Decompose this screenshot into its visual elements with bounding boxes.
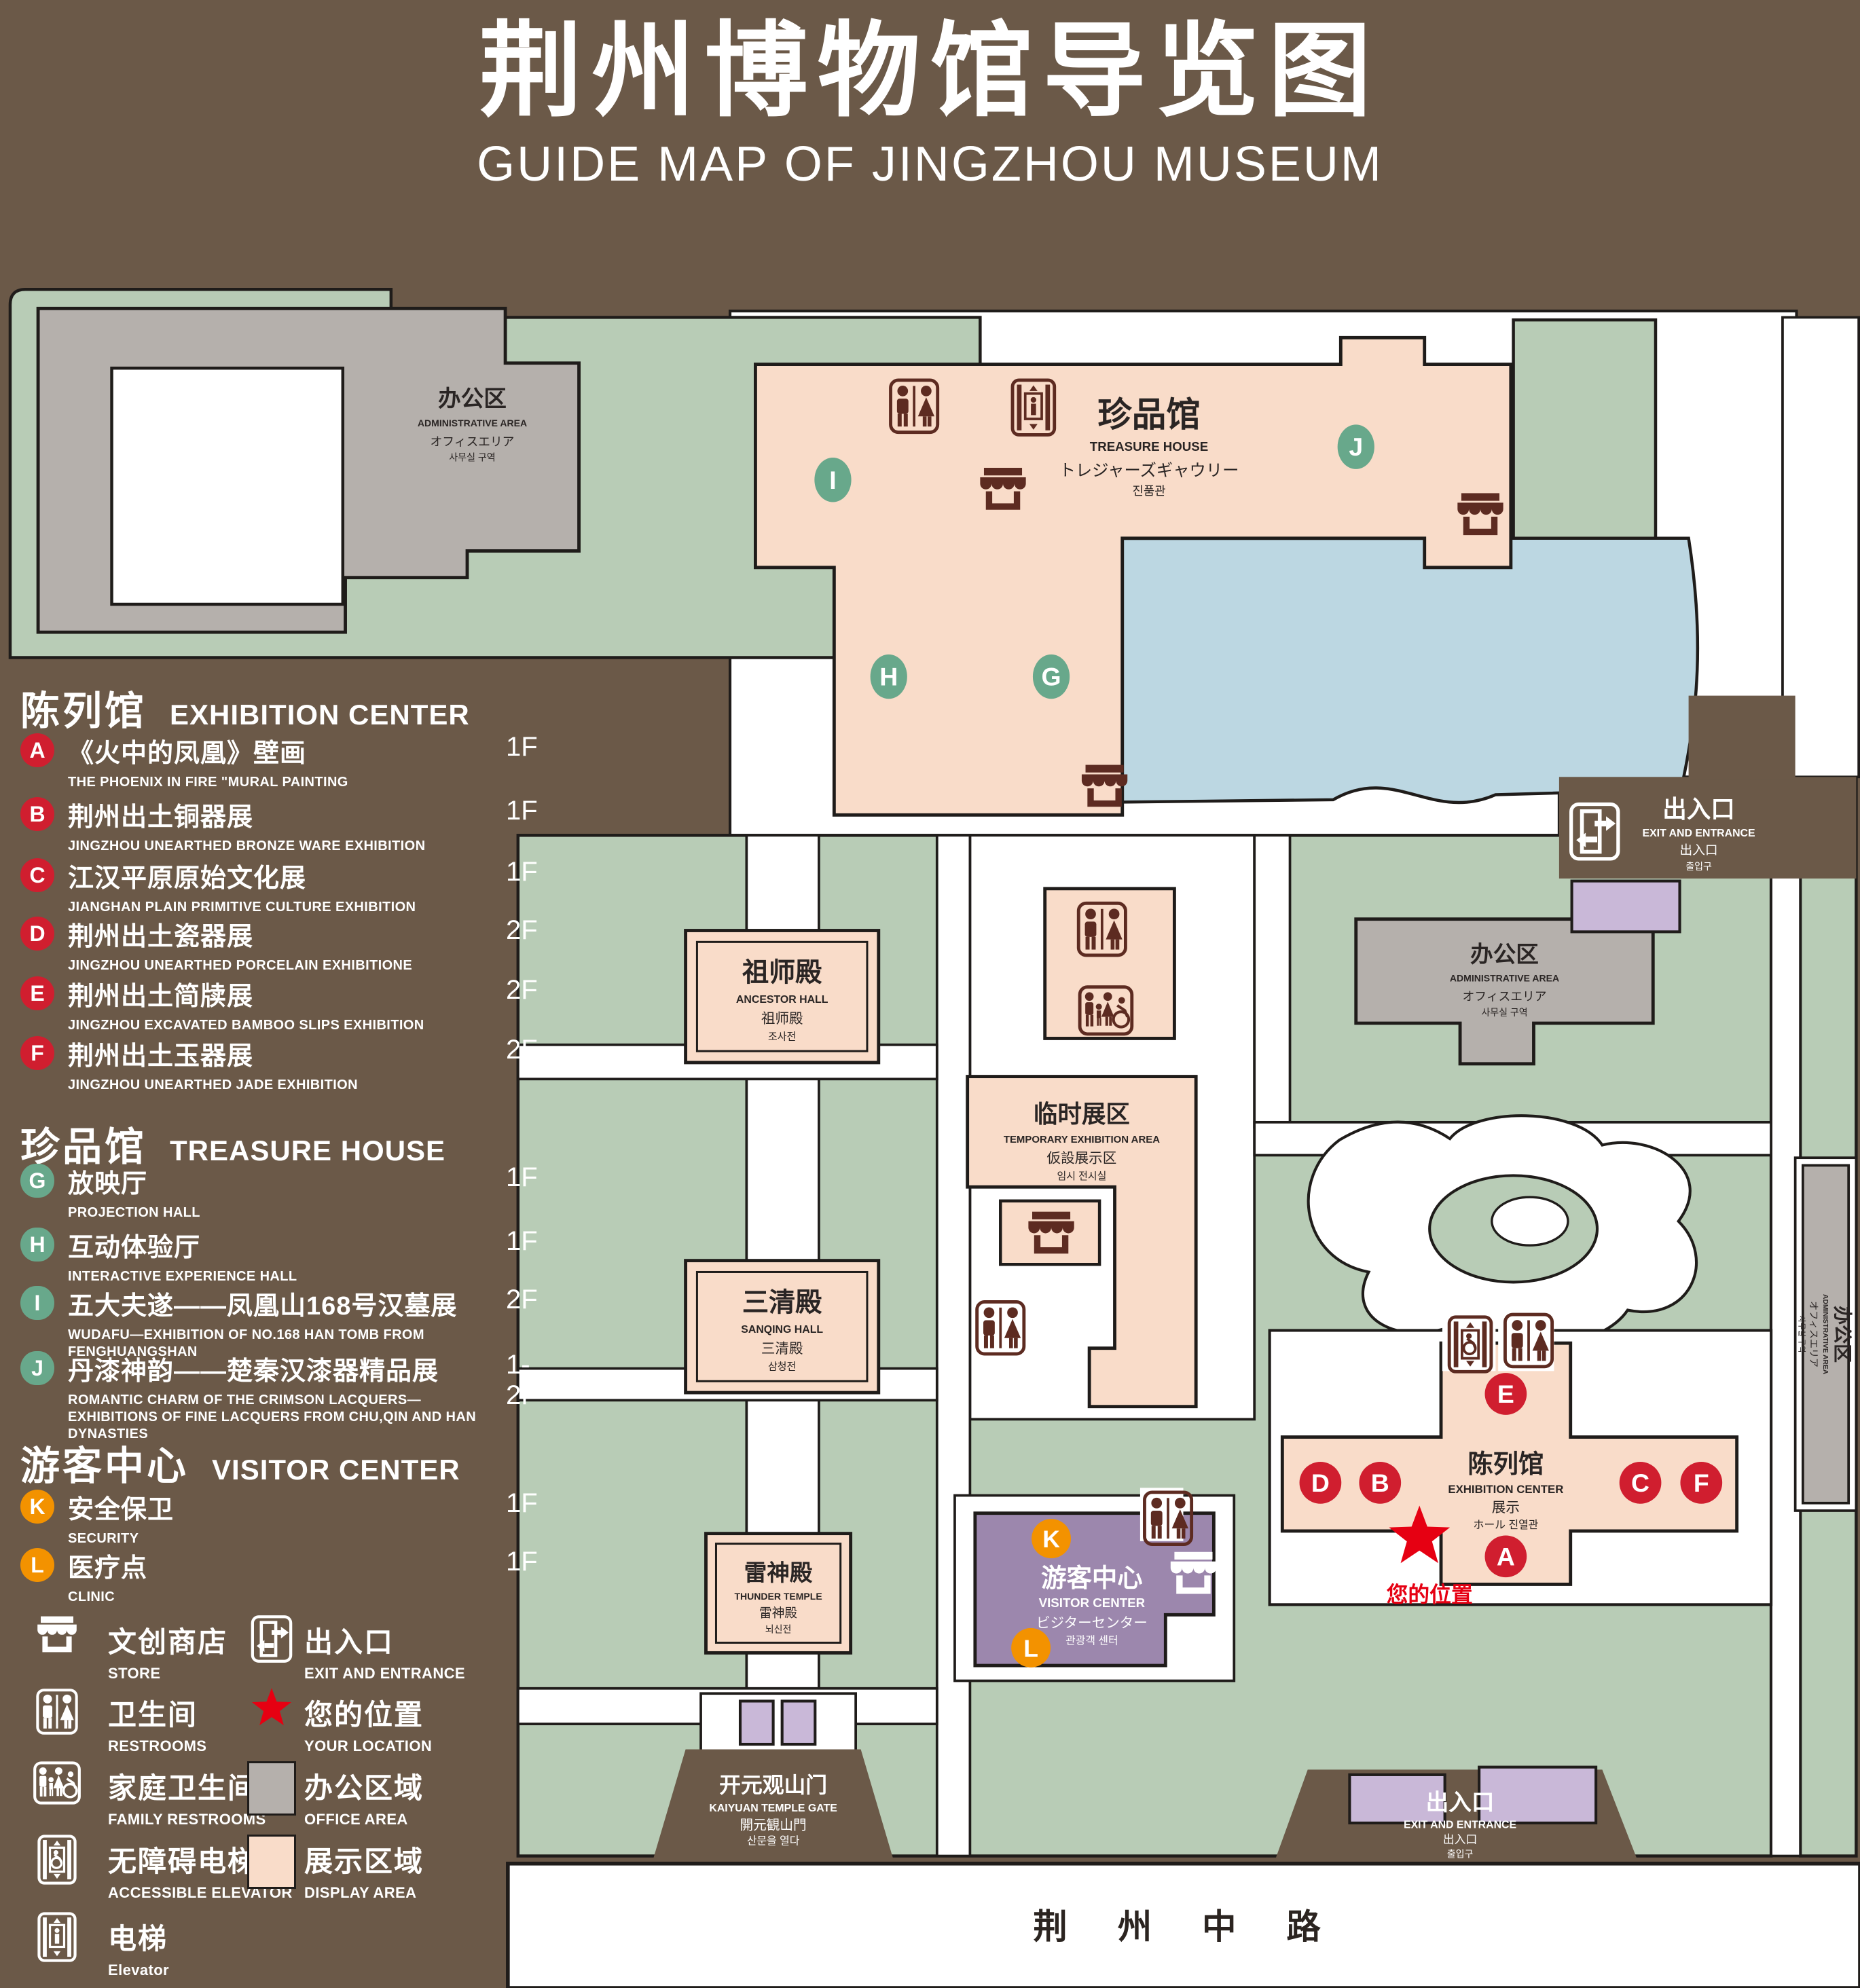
store-icon <box>23 1615 91 1657</box>
legend-item-j: J 丹漆神韵——楚秦汉漆器精品展 ROMANTIC CHARM OF THE C… <box>20 1350 536 1443</box>
legend-item-e: E 荆州出土简牍展 JINGZHOU EXCAVATED BAMBOO SLIP… <box>20 975 536 1034</box>
legend-item-d: D 荆州出土瓷器展 JINGZHOU UNEARTHED PORCELAIN E… <box>20 915 536 974</box>
legend-section-visitor-center: 游客中心VISITOR CENTER <box>20 1434 460 1491</box>
legend-item-k: K 安全保卫 SECURITY 1F <box>20 1488 536 1547</box>
legend-item-b: B 荆州出土铜器展 JINGZHOU UNEARTHED BRONZE WARE… <box>20 796 536 855</box>
family-restrooms-icon <box>23 1761 91 1808</box>
elevator-icon <box>23 1912 91 1966</box>
accessible-elevator-icon <box>23 1835 91 1888</box>
restrooms-icon <box>23 1688 91 1739</box>
legend-panel: 陈列馆EXHIBITION CENTER A 《火中的凤凰》壁画 THE PHO… <box>0 0 1860 1988</box>
legend-item-f: F 荆州出土玉器展 JINGZHOU UNEARTHED JADE EXHIBI… <box>20 1035 536 1094</box>
display-swatch <box>238 1835 306 1892</box>
legend-section-exhibition-center: 陈列馆EXHIBITION CENTER <box>20 679 470 736</box>
legend-item-l: L 医疗点 CLINIC 1F <box>20 1547 536 1606</box>
legend-item-h: H 互动体验厅 INTERACTIVE EXPERIENCE HALL 1F <box>20 1226 536 1285</box>
guide-map-poster: 荆州博物馆导览图 GUIDE MAP OF JINGZHOU MUSEUM <box>0 0 1860 1988</box>
legend-item-a: A 《火中的凤凰》壁画 THE PHOENIX IN FIRE "MURAL P… <box>20 732 536 791</box>
office-swatch <box>238 1761 306 1819</box>
exit-icon <box>238 1615 306 1666</box>
legend-item-g: G 放映厅 PROJECTION HALL 1F <box>20 1162 536 1221</box>
legend-item-c: C 江汉平原原始文化展 JIANGHAN PLAIN PRIMITIVE CUL… <box>20 857 536 916</box>
location-star-icon <box>238 1688 306 1729</box>
